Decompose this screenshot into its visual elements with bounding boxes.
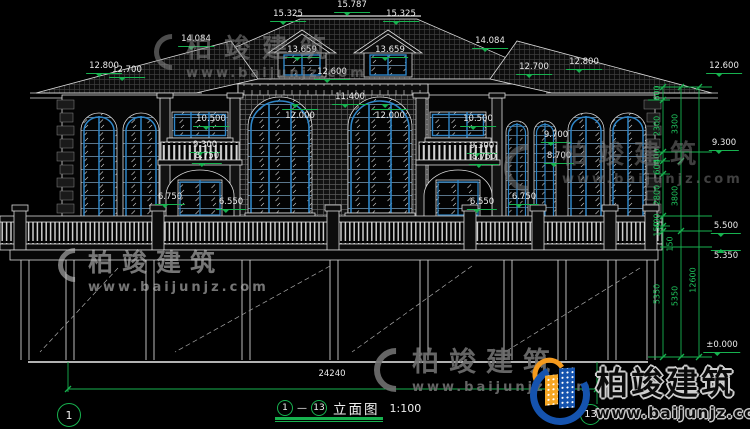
- company-website: www.baijunjz.com: [596, 404, 750, 422]
- logo-yellow-building: [545, 374, 558, 406]
- title-separator: —: [297, 403, 307, 414]
- title-underline-thin: [275, 421, 383, 422]
- title-text: 立面图: [333, 398, 380, 418]
- title-axis-end-bubble: 13: [311, 400, 327, 416]
- cad-elevation-screenshot: 15.78715.32515.32513.65913.65914.08414.0…: [0, 0, 750, 429]
- company-logo-icon: [528, 357, 592, 423]
- axis-bubble-1: 1: [57, 403, 81, 427]
- stilts-group: [21, 260, 655, 362]
- title-scale: 1:100: [390, 402, 422, 415]
- company-logo: 柏竣建筑 www.baijunjz.com: [528, 357, 750, 423]
- title-underline: [275, 417, 383, 420]
- title-axis-start-bubble: 1: [277, 400, 293, 416]
- company-name: 柏竣建筑: [596, 358, 750, 404]
- drawing-title: 1 — 13 立面图 1:100: [277, 398, 421, 418]
- logo-blue-building: [559, 367, 575, 408]
